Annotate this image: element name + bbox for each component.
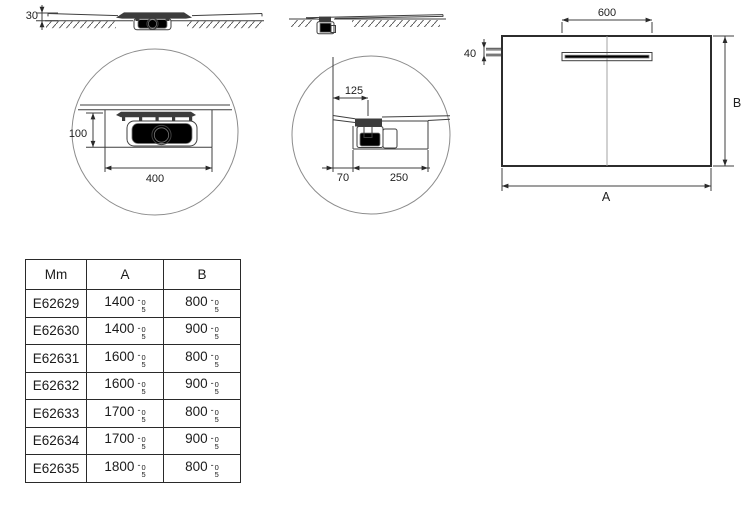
channel-length-dimension: 600 — [562, 7, 652, 33]
size-table-row: E62630 1400-05 900-05 — [26, 317, 241, 345]
recess-width-label: 400 — [146, 173, 164, 185]
tolerance-minus: - — [137, 295, 140, 305]
dimension-b-value: 800 — [185, 349, 208, 364]
product-code-cell: E62634 — [26, 427, 87, 455]
product-code-cell: E62630 — [26, 317, 87, 345]
drain-recess-width-label: 250 — [390, 172, 408, 184]
tolerance-minus: - — [137, 378, 140, 388]
dimension-a-cell: 1400-05 — [87, 290, 164, 318]
channel-offset-label: 40 — [464, 48, 476, 60]
tolerance-stack: 05 — [141, 381, 145, 395]
tolerance-minus: - — [137, 350, 140, 360]
recess-depth-label: 100 — [69, 128, 87, 140]
product-code-cell: E62632 — [26, 372, 87, 400]
drain-offset-label: 125 — [345, 85, 363, 97]
tolerance-lower: 5 — [141, 416, 145, 423]
width-letter-label: A — [602, 190, 611, 204]
width-dimension-A: A — [502, 168, 711, 204]
tolerance-stack: 05 — [141, 299, 145, 313]
drain-offset-dimension: 125 — [333, 85, 368, 116]
depth-letter-label: B — [733, 96, 741, 110]
dimension-b-cell: 800-05 — [164, 345, 241, 373]
dimension-a-cell: 1800-05 — [87, 455, 164, 483]
tolerance-stack: 05 — [215, 354, 219, 368]
column-a-header: A — [87, 260, 164, 290]
size-table-body: E62629 1400-05 800-05 E62630 1400-05 900… — [26, 290, 241, 483]
drain-trap-detail — [116, 112, 197, 146]
product-code-cell: E62635 — [26, 455, 87, 483]
tolerance-minus: - — [137, 323, 140, 333]
tolerance-minus: - — [211, 350, 214, 360]
detail-circle-edge-drain: 125 70 250 — [285, 50, 465, 220]
dimension-b-cell: 800-05 — [164, 400, 241, 428]
dimension-a-value: 1800 — [104, 459, 134, 474]
size-table: Mm A B E62629 1400-05 800-05 E62630 1400… — [25, 259, 241, 483]
size-table-row: E62635 1800-05 800-05 — [26, 455, 241, 483]
floor-hatching — [46, 21, 116, 28]
tolerance-minus: - — [211, 433, 214, 443]
dimension-a-cell: 1700-05 — [87, 427, 164, 455]
tolerance-stack: 05 — [141, 354, 145, 368]
dimension-b-cell: 800-05 — [164, 455, 241, 483]
dimension-a-value: 1700 — [104, 431, 134, 446]
dimension-b-value: 900 — [185, 431, 208, 446]
tolerance-stack: 05 — [215, 464, 219, 478]
tolerance-stack: 05 — [215, 326, 219, 340]
tolerance-lower: 5 — [215, 443, 219, 450]
dimension-a-value: 1600 — [104, 349, 134, 364]
depth-dimension-B: B — [713, 36, 741, 166]
tolerance-stack: 05 — [141, 326, 145, 340]
size-table-row: E62631 1600-05 800-05 — [26, 345, 241, 373]
tolerance-minus: - — [137, 405, 140, 415]
drain-trap-section — [317, 17, 336, 34]
tolerance-lower: 5 — [215, 471, 219, 478]
dimension-a-value: 1700 — [104, 404, 134, 419]
cross-section-edge-drain — [280, 0, 460, 42]
drain-trap-detail — [355, 119, 397, 149]
tolerance-stack: 05 — [215, 299, 219, 313]
dimension-b-cell: 800-05 — [164, 290, 241, 318]
dimension-a-value: 1400 — [104, 294, 134, 309]
unit-header-cell: Mm — [26, 260, 87, 290]
dimension-a-cell: 1600-05 — [87, 372, 164, 400]
dimension-b-cell: 900-05 — [164, 372, 241, 400]
tolerance-minus: - — [211, 405, 214, 415]
size-table-row: E62633 1700-05 800-05 — [26, 400, 241, 428]
size-table-row: E62632 1600-05 900-05 — [26, 372, 241, 400]
tolerance-stack: 05 — [141, 436, 145, 450]
tolerance-stack: 05 — [141, 409, 145, 423]
dimension-b-cell: 900-05 — [164, 427, 241, 455]
floor-hatching — [352, 20, 440, 27]
tolerance-minus: - — [137, 460, 140, 470]
product-code-cell: E62633 — [26, 400, 87, 428]
size-table-row: E62634 1700-05 900-05 — [26, 427, 241, 455]
tolerance-minus: - — [211, 460, 214, 470]
tolerance-lower: 5 — [141, 388, 145, 395]
tolerance-lower: 5 — [215, 333, 219, 340]
product-code-cell: E62631 — [26, 345, 87, 373]
plan-view: 600 40 B A — [450, 5, 750, 210]
dimension-b-value: 900 — [185, 321, 208, 336]
tolerance-stack: 05 — [141, 464, 145, 478]
floor-hatching — [291, 20, 312, 27]
tolerance-minus: - — [137, 433, 140, 443]
technical-drawing-page: 30 — [0, 0, 750, 506]
edge-gap-label: 70 — [337, 172, 349, 184]
dimension-a-cell: 1600-05 — [87, 345, 164, 373]
tolerance-lower: 5 — [215, 306, 219, 313]
bottom-dimensions: 70 250 — [322, 150, 430, 184]
tolerance-lower: 5 — [141, 306, 145, 313]
dimension-b-value: 900 — [185, 376, 208, 391]
tolerance-lower: 5 — [215, 416, 219, 423]
tolerance-lower: 5 — [141, 471, 145, 478]
tolerance-lower: 5 — [141, 361, 145, 368]
tolerance-minus: - — [211, 295, 214, 305]
tolerance-minus: - — [211, 323, 214, 333]
dimension-a-cell: 1700-05 — [87, 400, 164, 428]
tolerance-lower: 5 — [215, 388, 219, 395]
floor-hatching — [187, 21, 262, 28]
tolerance-stack: 05 — [215, 436, 219, 450]
dimension-b-cell: 900-05 — [164, 317, 241, 345]
tolerance-stack: 05 — [215, 381, 219, 395]
channel-offset-dimension: 40 — [464, 39, 501, 65]
tolerance-lower: 5 — [141, 443, 145, 450]
tolerance-minus: - — [211, 378, 214, 388]
detail-circle-center-drain: 100 400 — [65, 45, 250, 220]
dimension-b-value: 800 — [185, 459, 208, 474]
tolerance-lower: 5 — [215, 361, 219, 368]
dimension-b-value: 800 — [185, 294, 208, 309]
channel-length-label: 600 — [598, 7, 616, 19]
tolerance-lower: 5 — [141, 333, 145, 340]
dimension-a-value: 1400 — [104, 321, 134, 336]
column-b-header: B — [164, 260, 241, 290]
tolerance-stack: 05 — [215, 409, 219, 423]
recess-depth-dimension: 100 — [69, 113, 105, 147]
dimension-a-cell: 1400-05 — [87, 317, 164, 345]
recess-width-dimension: 400 — [105, 147, 212, 185]
product-code-cell: E62629 — [26, 290, 87, 318]
size-table-row: E62629 1400-05 800-05 — [26, 290, 241, 318]
dimension-b-value: 800 — [185, 404, 208, 419]
size-table-header-row: Mm A B — [26, 260, 241, 290]
dimension-a-value: 1600 — [104, 376, 134, 391]
cross-section-center-drain: 30 — [0, 0, 270, 42]
